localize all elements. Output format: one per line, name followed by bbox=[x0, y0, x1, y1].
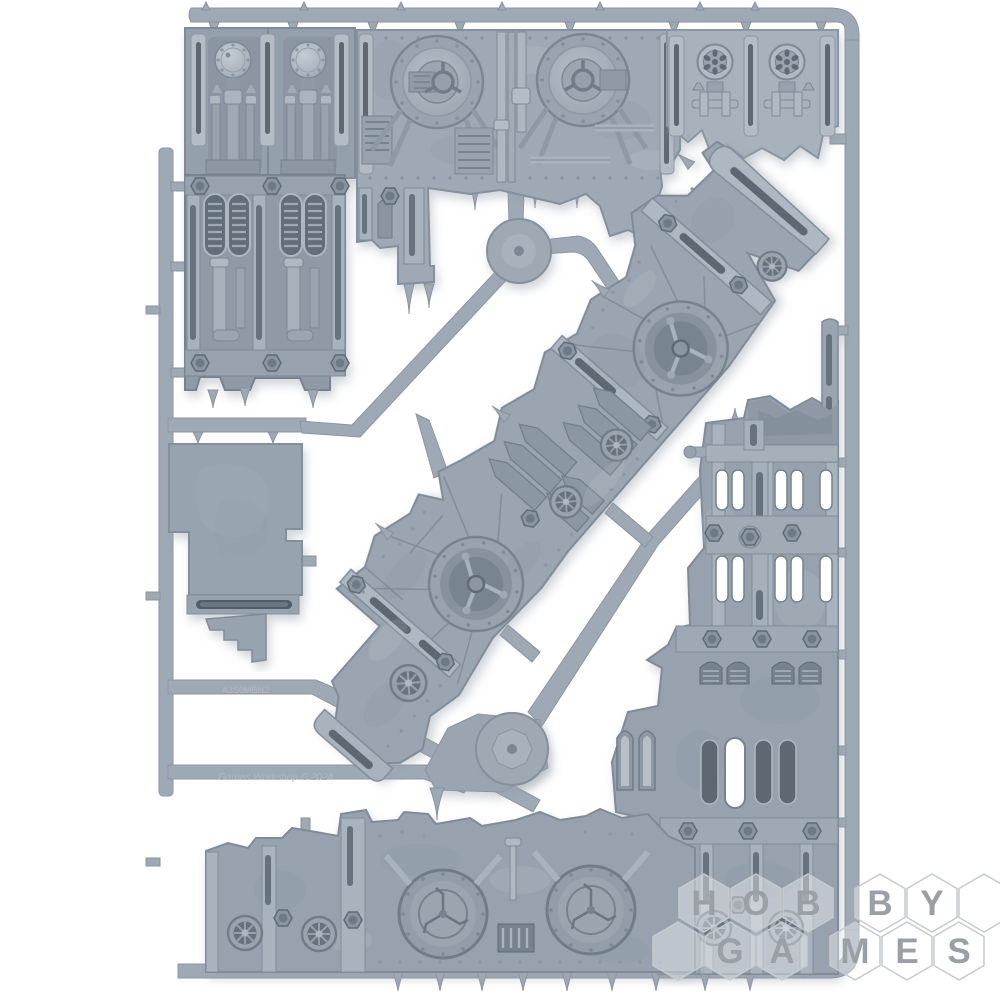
svg-text:B: B bbox=[795, 884, 820, 923]
svg-text:B: B bbox=[867, 884, 892, 923]
svg-text:S: S bbox=[947, 932, 970, 971]
svg-text:Y: Y bbox=[920, 884, 943, 923]
svg-text:M: M bbox=[840, 932, 869, 971]
svg-text:E: E bbox=[895, 932, 918, 971]
svg-text:H: H bbox=[691, 884, 716, 923]
svg-text:O: O bbox=[742, 884, 769, 923]
svg-text:A: A bbox=[769, 932, 794, 971]
svg-text:G: G bbox=[716, 932, 743, 971]
svg-text:Games Workshop © 2024: Games Workshop © 2024 bbox=[218, 772, 334, 783]
svg-text:A3S0MBN2: A3S0MBN2 bbox=[222, 685, 269, 695]
